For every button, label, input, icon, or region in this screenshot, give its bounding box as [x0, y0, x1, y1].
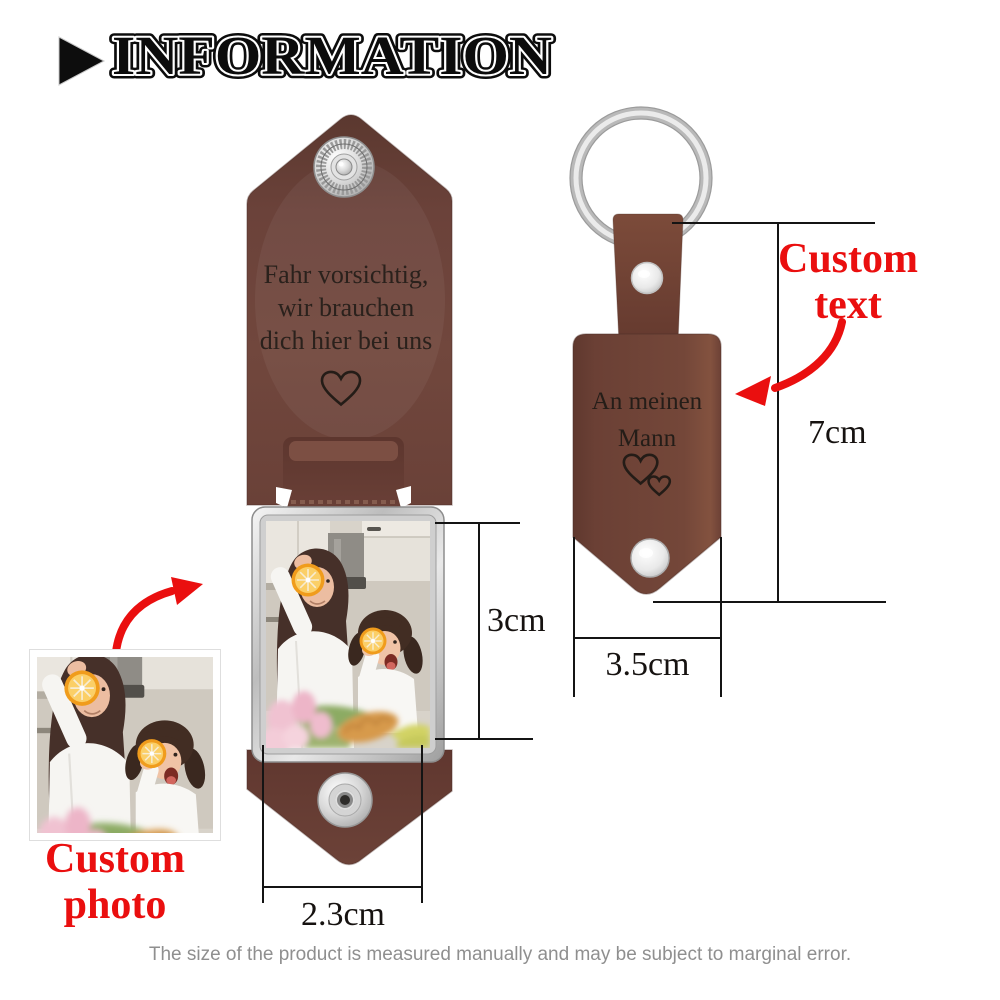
left-keychain-engraved-text: Fahr vorsichtig, wir brauchen dich hier … — [241, 258, 451, 357]
engraving-line: Fahr vorsichtig, — [241, 258, 451, 291]
engraving-line: An meinen — [566, 383, 728, 420]
custom-photo-callout: Custom photo — [20, 836, 210, 928]
right-snap-button — [631, 539, 669, 577]
left-keychain-strap-loop — [283, 437, 404, 517]
title-arrow-icon — [59, 37, 104, 85]
photo-height-label: 3cm — [487, 602, 546, 640]
custom-text-callout: Custom text — [768, 236, 928, 328]
photo-frame — [252, 507, 444, 762]
custom-text-arrow — [775, 322, 842, 388]
right-keychain — [570, 107, 721, 594]
custom-photo-arrow — [116, 591, 172, 652]
custom-text-arrowhead-icon — [735, 376, 771, 406]
engraving-line: dich hier bei uns — [241, 324, 451, 357]
keychain-width-label: 3.5cm — [574, 646, 721, 684]
snap-stud-button — [314, 137, 374, 197]
custom-text-line: Custom — [768, 236, 928, 282]
right-keychain-engraved-text: An meinen Mann — [566, 383, 728, 457]
snap-socket-button — [318, 773, 372, 827]
product-infographic: INFORMATION INFORMATION INFORMATION — [0, 0, 1000, 1000]
custom-photo-thumbnail — [30, 650, 220, 840]
custom-text-line: text — [768, 282, 928, 328]
photo-width-label: 2.3cm — [263, 896, 423, 934]
keychain-height-label: 7cm — [808, 414, 867, 452]
custom-photo-arrowhead-icon — [171, 577, 203, 605]
thumbnail-photo — [37, 657, 213, 833]
framed-photo — [257, 521, 430, 758]
engraving-line: Mann — [566, 420, 728, 457]
engraving-line: wir brauchen — [241, 291, 451, 324]
custom-photo-line: photo — [20, 882, 210, 928]
custom-photo-line: Custom — [20, 836, 210, 882]
rivet-button — [632, 263, 663, 294]
size-disclaimer: The size of the product is measured manu… — [0, 944, 1000, 966]
